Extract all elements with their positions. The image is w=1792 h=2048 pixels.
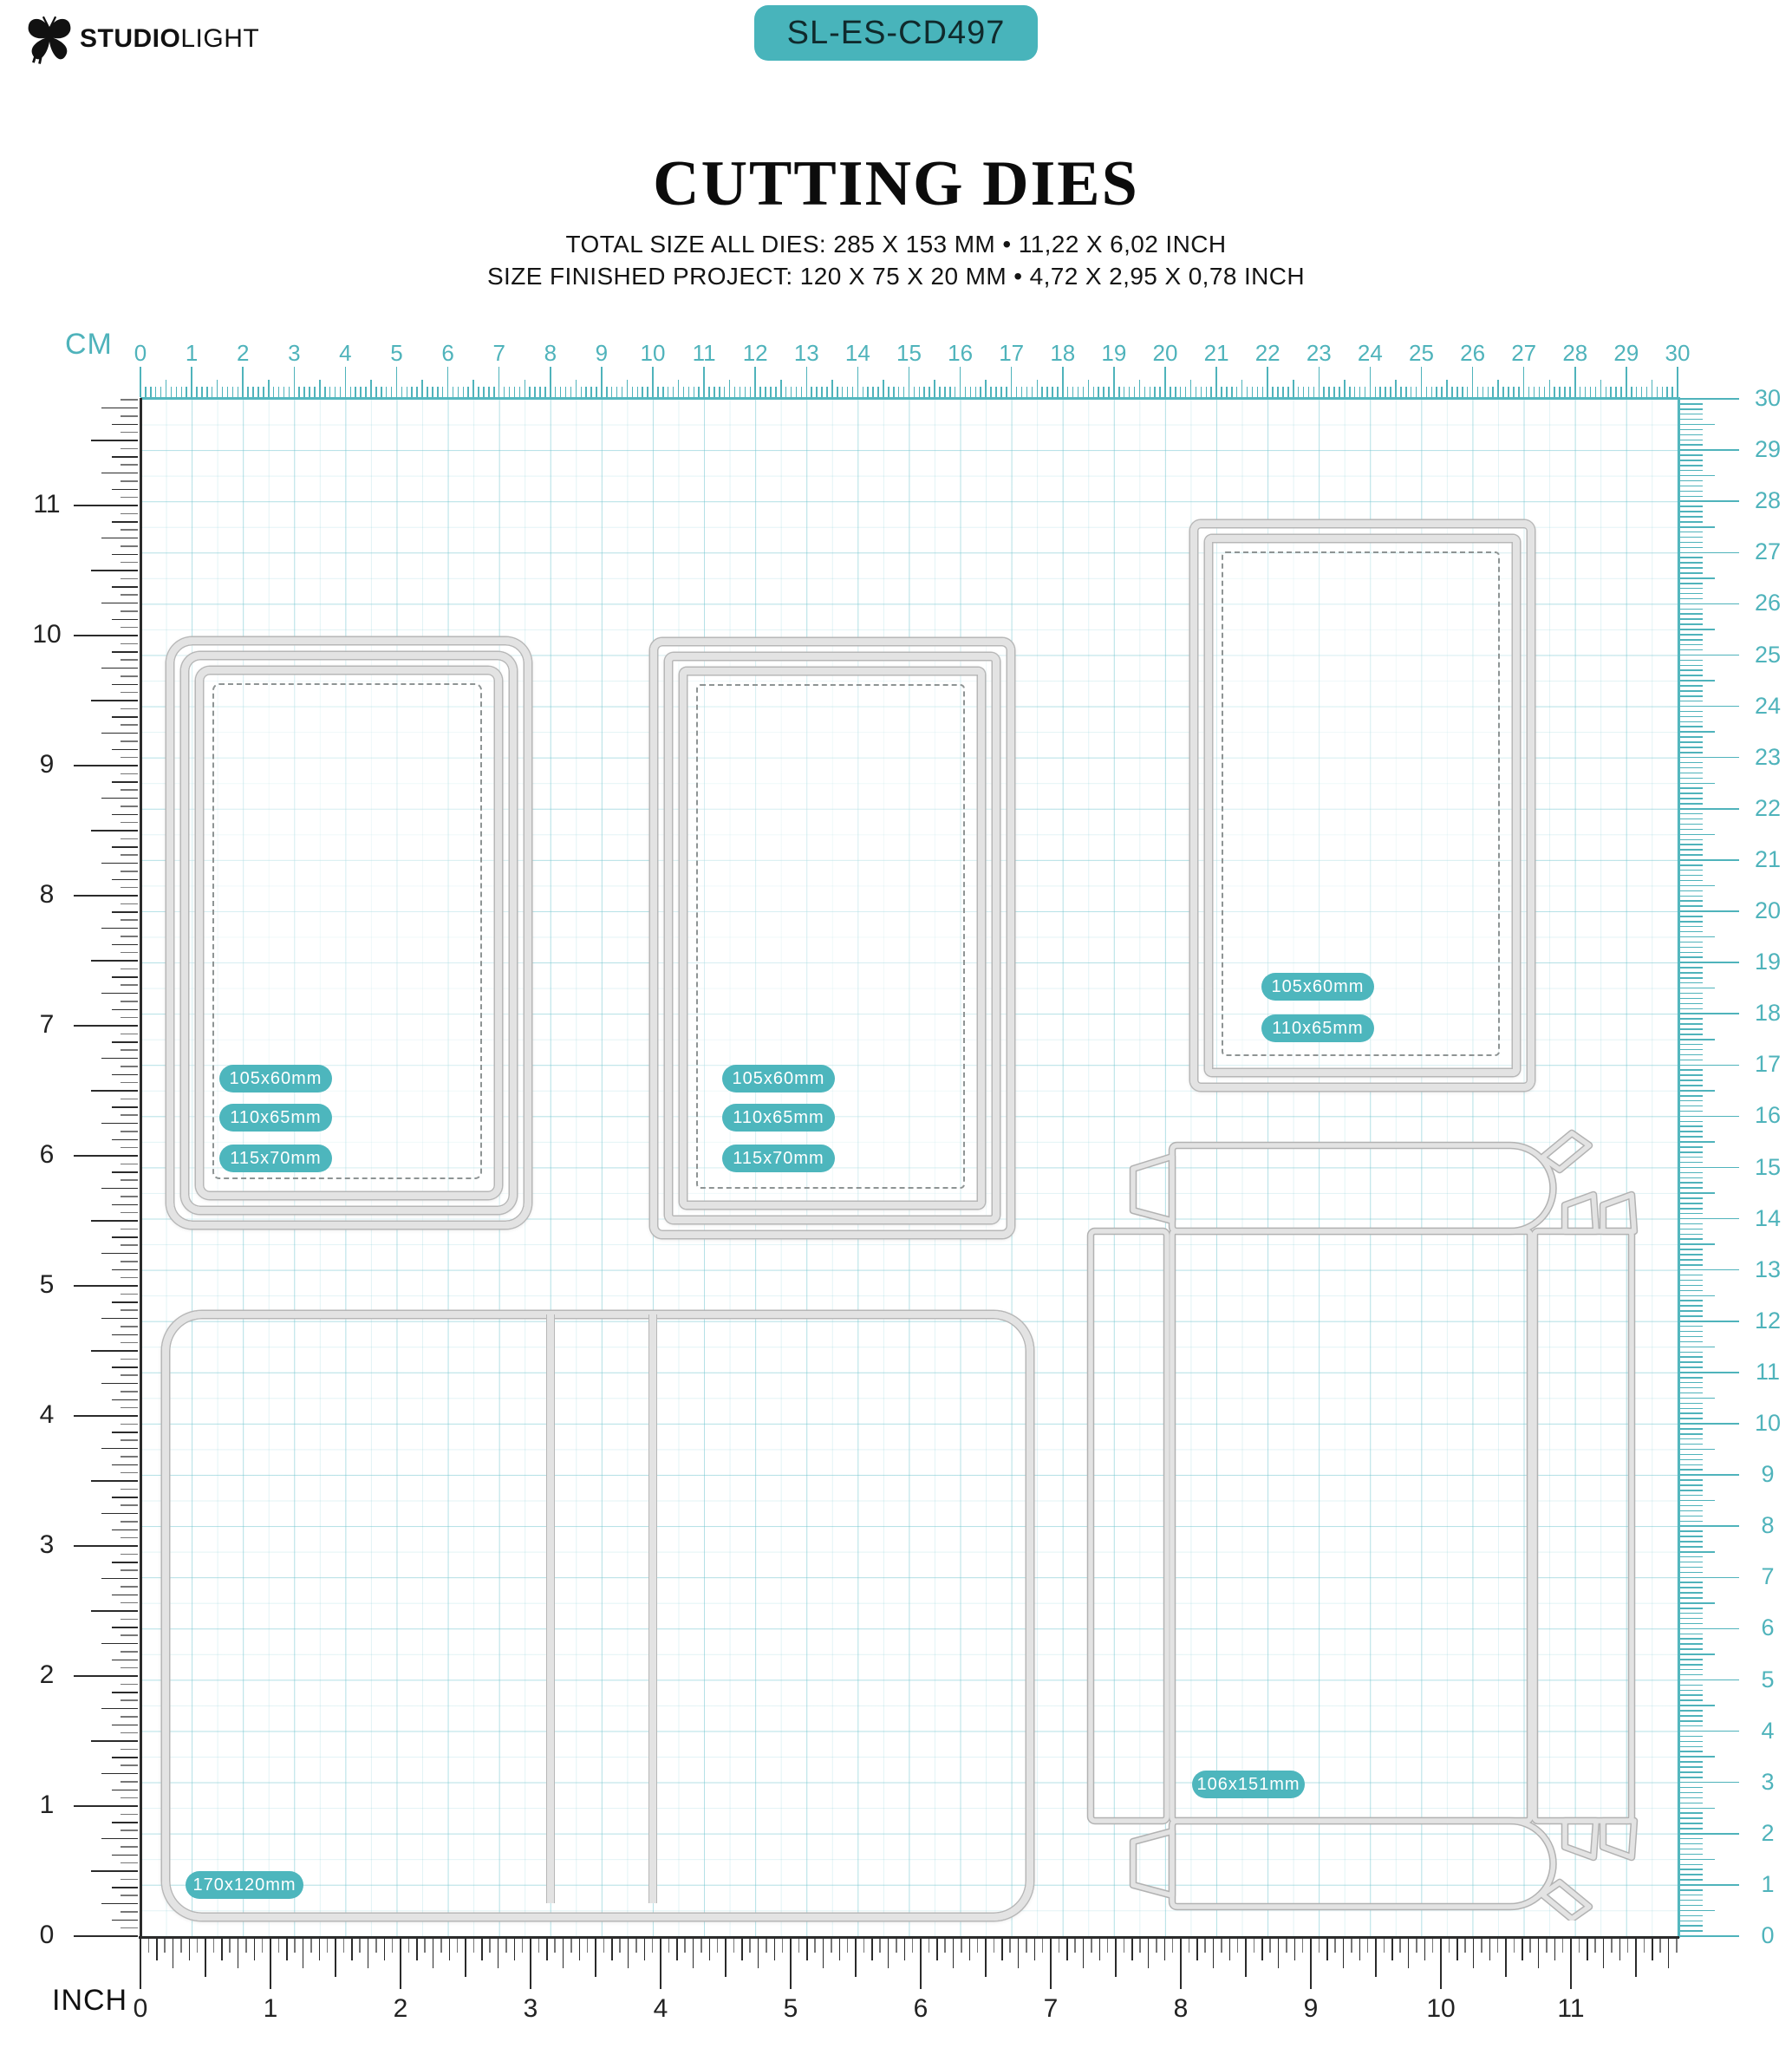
ruler-tick: [565, 387, 567, 397]
ruler-tick: [180, 1939, 182, 1953]
ruler-tick: [1680, 1305, 1703, 1307]
ruler-tick: [714, 387, 715, 397]
ruler-tick: [1513, 387, 1515, 397]
ruler-tick: [1680, 982, 1703, 984]
ruler-tick: [112, 1334, 138, 1336]
ruler-tick: [936, 1939, 938, 1960]
ruler-tick: [1680, 1474, 1739, 1476]
ruler-number: 4: [319, 340, 371, 367]
ruler-tick: [1680, 537, 1703, 538]
ruler-tick: [896, 1939, 897, 1953]
ruler-tick: [1451, 387, 1453, 397]
ruler-tick: [489, 1939, 491, 1953]
ruler-tick: [1489, 1939, 1491, 1960]
ruler-tick: [1680, 1234, 1703, 1236]
ruler-tick: [359, 1939, 361, 1953]
ruler-tick: [156, 1939, 158, 1960]
ruler-tick: [1680, 1597, 1703, 1599]
ruler-tick: [327, 1939, 329, 1953]
ruler-tick: [1680, 680, 1715, 682]
fold-line: [648, 1314, 657, 1903]
ruler-tick: [1590, 387, 1592, 397]
ruler-tick: [217, 380, 218, 397]
ruler-tick: [1680, 572, 1703, 574]
ruler-tick: [1421, 367, 1423, 397]
ruler-number: 13: [1742, 1256, 1792, 1283]
ruler-tick: [1680, 475, 1715, 477]
ruler-tick: [201, 387, 203, 397]
ruler-tick: [1680, 649, 1703, 651]
ruler-tick: [1680, 547, 1703, 549]
ruler-tick: [1680, 1608, 1703, 1609]
ruler-tick: [1449, 1939, 1450, 1953]
ruler-tick: [91, 1740, 138, 1742]
ruler-tick: [1680, 1361, 1703, 1363]
ruler-tick: [74, 1285, 138, 1287]
ruler-tick: [1680, 808, 1739, 810]
ruler-tick: [112, 846, 138, 848]
ruler-tick: [1680, 762, 1703, 764]
ruler-tick: [121, 1017, 138, 1019]
ruler-tick: [1052, 387, 1053, 397]
ruler-number: 0: [16, 1921, 78, 1950]
ruler-tick: [530, 1939, 531, 1989]
ruler-tick: [1037, 380, 1039, 397]
ruler-tick: [91, 1350, 138, 1352]
ruler-number: 8: [1155, 1994, 1207, 2024]
ruler-tick: [121, 1374, 138, 1376]
ruler-tick: [1644, 1939, 1645, 1953]
ruler-tick: [472, 380, 474, 397]
ruler-number: 29: [1600, 340, 1652, 367]
ruler-tick: [949, 387, 951, 397]
ruler-tick: [319, 380, 321, 397]
ruler-tick: [1680, 1546, 1703, 1548]
ruler-tick: [121, 1814, 138, 1816]
ruler-tick: [955, 387, 956, 397]
ruler-tick: [831, 380, 833, 397]
ruler-tick: [1286, 1939, 1287, 1953]
ruler-tick: [324, 387, 326, 397]
ruler-tick: [601, 367, 603, 397]
ruler-tick: [101, 1773, 138, 1775]
ruler-tick: [121, 1749, 138, 1751]
ruler-tick: [871, 1939, 873, 1960]
ruler-tick: [1680, 1505, 1703, 1507]
ruler-tick: [1680, 414, 1703, 415]
ruler-tick: [1497, 380, 1499, 397]
ruler-tick: [498, 1939, 499, 1968]
ruler-tick: [1680, 1751, 1703, 1752]
ruler-tick: [112, 1627, 138, 1628]
ruler-tick: [616, 387, 618, 397]
ruler-tick: [1339, 387, 1340, 397]
ruler-tick: [1680, 460, 1703, 461]
ruler-tick: [1680, 1167, 1739, 1169]
ruler-tick: [1247, 387, 1248, 397]
ruler-tick: [91, 960, 138, 962]
ruler-tick: [673, 387, 674, 397]
ruler-tick: [1680, 798, 1703, 799]
ruler-tick: [1680, 419, 1703, 421]
ruler-tick: [1680, 1382, 1703, 1384]
ruler-tick: [121, 1424, 138, 1425]
ruler-tick: [904, 1939, 906, 1960]
ruler-tick: [112, 1595, 138, 1596]
ruler-tick: [1180, 387, 1182, 397]
ruler-tick: [121, 1439, 138, 1441]
ruler-tick: [657, 387, 659, 397]
ruler-tick: [1680, 1551, 1715, 1553]
ruler-tick: [1354, 387, 1356, 397]
ruler-tick: [1680, 486, 1703, 487]
ruler-tick: [785, 387, 787, 397]
ruler-tick: [1680, 1310, 1703, 1312]
ruler-tick: [294, 1939, 296, 1953]
ruler-tick: [1569, 387, 1571, 397]
ruler-tick: [1680, 690, 1703, 692]
ruler-tick: [1680, 1602, 1715, 1604]
ruler-tick: [1680, 1449, 1715, 1451]
ruler-tick: [1680, 1777, 1703, 1778]
ruler-number: 10: [16, 620, 78, 649]
ruler-tick: [1676, 1939, 1678, 1953]
ruler-tick: [1680, 905, 1703, 907]
ruler-tick: [1159, 387, 1161, 397]
ruler-tick: [121, 854, 138, 856]
ruler-tick: [1680, 859, 1739, 861]
ruler-tick: [121, 1179, 138, 1181]
ruler-tick: [121, 1797, 138, 1799]
ruler-tick: [1680, 1648, 1703, 1650]
ruler-tick: [1680, 1444, 1703, 1445]
ruler-tick: [1680, 1295, 1715, 1297]
ruler-tick: [1400, 387, 1402, 397]
ruler-tick: [560, 387, 562, 397]
ruler-tick: [1680, 1469, 1703, 1471]
size-label-pill: 115x70mm: [722, 1145, 835, 1172]
size-label-pill: 106x151mm: [1192, 1771, 1305, 1798]
ruler-tick: [1680, 557, 1703, 558]
ruler-tick: [1680, 1352, 1703, 1353]
ruler-tick: [919, 387, 921, 397]
ruler-tick: [1680, 767, 1703, 769]
ruler-tick: [335, 1939, 336, 1977]
ruler-tick: [212, 387, 213, 397]
ruler-tick: [1680, 1008, 1703, 1010]
ruler-tick: [1680, 1587, 1703, 1588]
ruler-tick: [611, 387, 613, 397]
ruler-tick: [1680, 444, 1703, 446]
ruler-tick: [350, 387, 352, 397]
ruler-tick: [1680, 1823, 1703, 1824]
ruler-tick: [112, 586, 138, 588]
ruler-tick: [1680, 1213, 1703, 1215]
ruler-tick: [1680, 1592, 1703, 1594]
ruler-tick: [759, 387, 761, 397]
ruler-tick: [660, 1939, 661, 1989]
ruler-tick: [1502, 387, 1504, 397]
ruler-tick: [396, 367, 398, 397]
ruler-tick: [1107, 1939, 1109, 1953]
ruler-tick: [1680, 1034, 1703, 1035]
ruler-tick: [1000, 387, 1002, 397]
ruler-tick: [1441, 387, 1443, 397]
ruler-tick: [652, 367, 654, 397]
ruler-tick: [1323, 387, 1325, 397]
ruler-number: 9: [1742, 1461, 1792, 1488]
top-ruler-baseline: [140, 397, 1679, 400]
ruler-tick: [733, 1939, 735, 1953]
ruler-tick: [1226, 387, 1228, 397]
ruler-tick: [1539, 387, 1541, 397]
ruler-number: 2: [1742, 1820, 1792, 1847]
ruler-tick: [1680, 1269, 1739, 1271]
ruler-tick: [965, 387, 967, 397]
ruler-tick: [262, 1939, 264, 1953]
ruler-tick: [101, 1448, 138, 1450]
ruler-number: 30: [1652, 340, 1704, 367]
ruler-tick: [1148, 1939, 1150, 1968]
ruler-tick: [1680, 1366, 1703, 1368]
ruler-tick: [1254, 1939, 1255, 1953]
ruler-number: 1: [166, 340, 218, 367]
ruler-number: 9: [576, 340, 628, 367]
ruler-tick: [140, 1939, 141, 1989]
ruler-tick: [447, 367, 449, 397]
ruler-tick: [449, 1939, 451, 1960]
page-title: CUTTING DIES: [0, 147, 1792, 221]
ruler-tick: [1680, 1843, 1703, 1845]
ruler-tick: [286, 1939, 288, 1960]
ruler-tick: [101, 538, 138, 539]
ruler-tick: [1587, 1939, 1588, 1960]
ruler-tick: [121, 464, 138, 466]
ruler-tick: [1294, 1939, 1296, 1960]
ruler-tick: [741, 1939, 743, 1960]
ruler-tick: [121, 1537, 138, 1539]
ruler-number: 3: [505, 1994, 557, 2024]
ruler-tick: [831, 1939, 832, 1953]
ruler-tick: [1680, 1387, 1703, 1389]
ruler-tick: [1626, 367, 1627, 397]
ruler-tick: [1293, 380, 1294, 397]
ruler-tick: [148, 1939, 150, 1953]
ruler-tick: [1518, 387, 1520, 397]
ruler-number: 28: [1742, 487, 1792, 514]
ruler-tick: [1328, 387, 1330, 397]
ruler-tick: [522, 1939, 524, 1953]
ruler-number: 6: [16, 1140, 78, 1170]
ruler-number: 11: [678, 340, 730, 367]
ruler-tick: [112, 651, 138, 653]
ruler-tick: [121, 1504, 138, 1506]
ruler-tick: [1680, 1653, 1715, 1655]
ruler-tick: [754, 367, 756, 397]
ruler-tick: [375, 1939, 377, 1953]
ruler-tick: [1680, 1705, 1715, 1706]
ruler-tick: [504, 387, 505, 397]
ruler-tick: [1467, 387, 1469, 397]
ruler-tick: [1680, 634, 1703, 636]
ruler-tick: [121, 1554, 138, 1556]
ruler-tick: [74, 1545, 138, 1547]
ruler-tick: [121, 1114, 138, 1116]
ruler-tick: [121, 1830, 138, 1831]
ruler-tick: [826, 387, 828, 397]
ruler-tick: [1098, 387, 1099, 397]
ruler-tick: [1680, 993, 1703, 995]
ruler-tick: [1680, 1895, 1703, 1896]
ruler-tick: [1175, 387, 1176, 397]
ruler-tick: [121, 1147, 138, 1149]
ruler-tick: [1680, 1100, 1703, 1102]
ruler-tick: [1482, 387, 1484, 397]
ruler-tick: [121, 1309, 138, 1311]
ruler-tick: [1302, 1939, 1304, 1953]
ruler-tick: [1041, 387, 1043, 397]
ruler-number: 10: [1742, 1410, 1792, 1437]
ruler-tick: [509, 387, 511, 397]
ruler-tick: [467, 387, 469, 397]
ruler-tick: [1093, 387, 1095, 397]
ruler-tick: [1680, 1613, 1703, 1614]
ruler-tick: [1680, 1854, 1703, 1856]
ruler-tick: [121, 1619, 138, 1621]
ruler-tick: [273, 387, 275, 397]
ruler-number: 11: [16, 490, 78, 519]
ruler-tick: [1680, 1090, 1715, 1092]
ruler-tick: [245, 1939, 247, 1953]
ruler-number: 24: [1344, 340, 1396, 367]
ruler-tick: [1680, 593, 1703, 595]
ruler-tick: [1680, 1771, 1703, 1773]
ruler-tick: [1680, 890, 1703, 892]
ruler-tick: [384, 1939, 386, 1960]
ruler-tick: [1680, 1761, 1703, 1763]
ruler-tick: [698, 387, 700, 397]
ruler-tick: [1426, 387, 1428, 397]
ruler-tick: [1680, 505, 1703, 507]
ruler-tick: [1021, 387, 1023, 397]
ruler-tick: [121, 1521, 138, 1523]
ruler-tick: [1310, 1939, 1312, 1989]
ruler-tick: [1113, 367, 1115, 397]
ruler-tick: [1680, 623, 1703, 625]
ruler-tick: [857, 367, 859, 397]
ruler-tick: [719, 387, 720, 397]
ruler-tick: [1680, 1203, 1703, 1204]
ruler-tick: [1680, 942, 1703, 943]
ruler-tick: [1492, 387, 1494, 397]
ruler-tick: [1680, 1151, 1703, 1153]
ruler-tick: [1680, 1659, 1703, 1660]
ruler-tick: [1680, 864, 1703, 866]
ruler-tick: [1680, 1572, 1703, 1574]
ruler-tick: [1267, 367, 1268, 397]
ruler-tick: [112, 1725, 138, 1726]
ruler-tick: [351, 1939, 353, 1960]
ruler-tick: [1534, 387, 1535, 397]
ruler-tick: [791, 387, 792, 397]
ruler-tick: [1680, 747, 1703, 748]
ruler-tick: [1131, 1939, 1133, 1960]
ruler-tick: [191, 367, 192, 397]
ruler-number: 8: [525, 340, 577, 367]
ruler-tick: [909, 367, 910, 397]
ruler-tick: [1554, 1939, 1556, 1960]
ruler-number: 19: [1742, 949, 1792, 975]
ruler-tick: [1385, 387, 1386, 397]
ruler-tick: [1072, 387, 1074, 397]
ruler-tick: [121, 529, 138, 531]
ruler-tick: [112, 1399, 138, 1401]
ruler-tick: [1213, 1939, 1215, 1968]
ruler-tick: [1680, 644, 1703, 646]
ruler-tick: [121, 740, 138, 742]
ruler-tick: [121, 1569, 138, 1571]
ruler-tick: [1680, 1238, 1703, 1240]
ruler-tick: [1680, 1141, 1715, 1143]
ruler-tick: [1680, 1060, 1703, 1061]
ruler-tick: [1680, 1889, 1703, 1891]
ruler-tick: [1229, 1939, 1231, 1960]
ruler-tick: [1680, 792, 1703, 794]
ruler-tick: [1416, 387, 1417, 397]
ruler-tick: [101, 1318, 138, 1320]
ruler-tick: [1059, 1939, 1060, 1953]
ruler-tick: [1585, 387, 1587, 397]
ruler-tick: [1680, 1393, 1703, 1394]
ruler-tick: [1436, 387, 1437, 397]
ruler-tick: [238, 1939, 239, 1968]
ruler-tick: [995, 387, 997, 397]
ruler-tick: [1326, 1939, 1328, 1960]
ruler-tick: [303, 387, 305, 397]
ruler-tick: [1680, 618, 1703, 620]
ruler-tick: [121, 887, 138, 889]
ruler-number: 4: [1742, 1718, 1792, 1745]
ruler-tick: [734, 387, 736, 397]
ruler-tick: [1108, 387, 1110, 397]
ruler-tick: [903, 387, 905, 397]
ruler-tick: [1477, 387, 1479, 397]
ruler-tick: [1680, 465, 1703, 466]
ruler-number: 2: [16, 1660, 78, 1690]
ruler-tick: [953, 1939, 955, 1968]
ruler-tick: [453, 387, 454, 397]
ruler-tick: [576, 380, 577, 397]
ruler-tick: [1680, 1792, 1703, 1794]
ruler-tick: [91, 1870, 138, 1872]
ruler-tick: [1646, 387, 1648, 397]
ruler-tick: [1261, 1939, 1263, 1960]
ruler-tick: [1620, 387, 1622, 397]
ruler-tick: [1344, 380, 1346, 397]
ruler-tick: [365, 387, 367, 397]
ruler-tick: [1564, 387, 1566, 397]
ruler-tick: [888, 1939, 889, 1968]
ruler-tick: [1680, 711, 1703, 713]
ruler-tick: [740, 387, 741, 397]
ruler-tick: [914, 387, 916, 397]
ruler-tick: [101, 1123, 138, 1125]
ruler-tick: [121, 903, 138, 905]
ruler-tick: [1680, 1921, 1703, 1922]
ruler-tick: [1399, 1939, 1401, 1953]
ruler-tick: [101, 993, 138, 995]
ruler-tick: [1680, 1849, 1703, 1850]
